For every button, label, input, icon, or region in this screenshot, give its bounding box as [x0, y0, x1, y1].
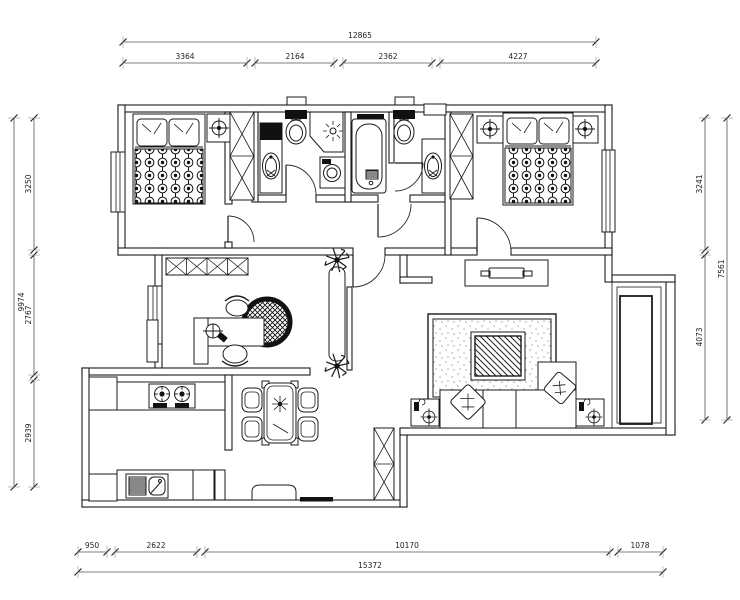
toilet	[285, 110, 307, 144]
lamp-side-table	[576, 399, 604, 426]
dimensions-top: 12865 3364 2164 2362 4227	[120, 31, 600, 69]
washbasin-counter	[422, 104, 446, 193]
door-bedroom1	[228, 216, 254, 242]
nightstand-lamp	[572, 116, 598, 143]
dim-right-total: 7561	[717, 259, 726, 278]
living-room	[411, 260, 666, 428]
washing-machine	[320, 157, 345, 188]
dimensions-bottom: 950 2622 10170 1078 15372	[75, 541, 667, 578]
hall-cabinet	[329, 267, 345, 361]
dining-table	[262, 381, 298, 445]
dim-top-seg1: 3364	[175, 52, 194, 61]
dim-top-total: 12865	[348, 31, 372, 40]
nightstand-lamp	[207, 114, 231, 142]
dining-chair	[298, 388, 318, 412]
dim-bottom-seg1: 950	[85, 541, 100, 550]
bed-double	[133, 114, 205, 204]
dining-area	[242, 381, 318, 445]
bathtub	[352, 114, 386, 193]
lamp-side-table	[411, 399, 439, 426]
balcony-sliding-door	[612, 282, 666, 428]
dimensions-left: 9974 3250 2767 2939	[8, 115, 40, 491]
door-bathroom1	[286, 165, 316, 195]
washbasin-counter	[260, 123, 282, 193]
dining-chair	[298, 417, 318, 441]
hallway	[325, 248, 349, 378]
office-chair	[225, 296, 249, 316]
floor-plan-canvas: 12865 3364 2164 2362 4227 9974 3250 2767…	[0, 0, 740, 600]
dim-left-seg2: 2767	[24, 305, 33, 324]
dim-bottom-seg4: 1078	[630, 541, 649, 550]
gas-stove	[149, 384, 195, 408]
dim-bottom-total: 15372	[358, 561, 382, 570]
dimensions-right: 3241 4073 7561	[695, 115, 733, 424]
bookshelf-x	[166, 258, 248, 275]
office-chair	[222, 345, 248, 366]
dining-chair	[242, 417, 262, 441]
entry-bench	[252, 485, 296, 500]
bed-double	[503, 113, 573, 205]
dining-chair	[242, 388, 262, 412]
door-bathroom2-hall	[378, 204, 411, 237]
wardrobe-x	[230, 112, 254, 200]
dim-top-seg4: 4227	[508, 52, 527, 61]
dim-bottom-seg3: 10170	[395, 541, 419, 550]
wardrobe-x	[450, 114, 473, 199]
table-centerpiece	[272, 396, 288, 412]
dim-left-seg1: 3250	[24, 174, 33, 193]
dim-top-seg3: 2362	[378, 52, 397, 61]
bedroom1	[133, 112, 254, 242]
window-bedroom1	[111, 152, 125, 212]
kitchen-cabinet	[89, 377, 117, 410]
dim-right-seg1: 3241	[695, 174, 704, 193]
window-bedroom2	[602, 150, 615, 232]
toilet	[393, 110, 415, 144]
dim-left-seg3: 2939	[24, 423, 33, 442]
dim-right-seg2: 4073	[695, 327, 704, 346]
dim-top-seg2: 2164	[285, 52, 304, 61]
cabinet	[147, 320, 158, 362]
tv-cabinet	[465, 260, 548, 286]
bedroom2	[450, 113, 598, 252]
floor-plan-page: 12865 3364 2164 2362 4227 9974 3250 2767…	[0, 0, 740, 600]
shoe-cabinet-x	[374, 428, 394, 500]
coffee-table	[471, 332, 525, 380]
door-study	[353, 255, 385, 287]
door-mat	[300, 497, 333, 502]
nightstand-lamp	[477, 116, 503, 143]
kitchen	[89, 377, 225, 501]
corner-shower	[310, 112, 343, 152]
door-bathroom2-inner	[395, 163, 423, 191]
dim-bottom-seg2: 2622	[146, 541, 165, 550]
door-bedroom2	[477, 218, 511, 252]
kitchen-counter-top	[117, 382, 225, 410]
bathroom2	[352, 97, 446, 237]
kitchen-sink	[126, 474, 168, 498]
kitchen-counter-bottom	[117, 470, 225, 500]
kitchen-cabinet	[89, 474, 117, 501]
